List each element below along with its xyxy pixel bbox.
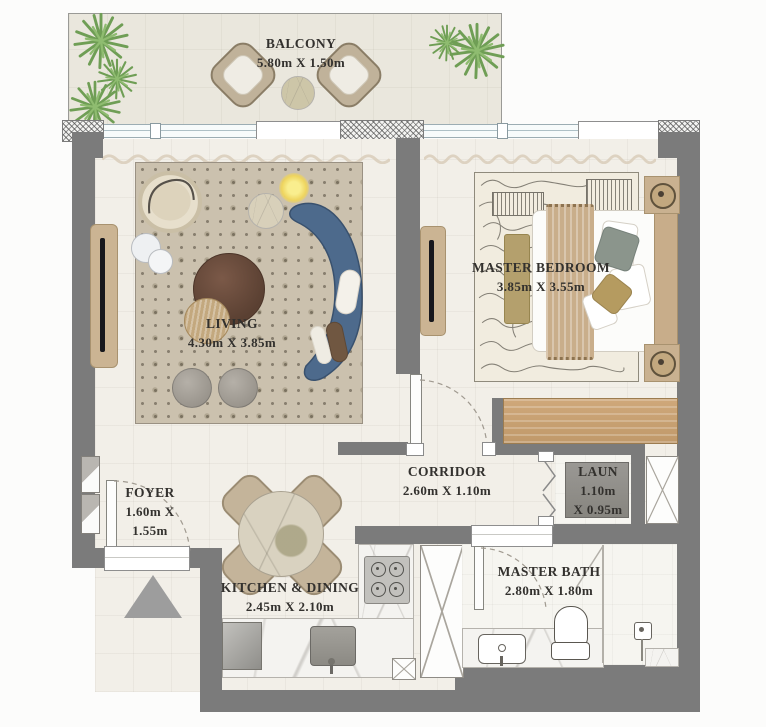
- plant-icon: [448, 22, 506, 80]
- window-mullion: [497, 123, 508, 139]
- wall: [631, 442, 645, 528]
- pouf: [172, 368, 212, 408]
- entrance-door-sill: [104, 546, 190, 571]
- side-table: [148, 249, 173, 274]
- room-dims: 2.45m X 2.10m: [221, 597, 359, 616]
- living-label: LIVING 4.30m X 3.85m: [188, 314, 276, 352]
- wall: [338, 442, 408, 455]
- wall: [549, 524, 678, 545]
- dining-table: [238, 491, 324, 577]
- balcony-door-panel: [256, 121, 344, 141]
- small-duct: [392, 658, 416, 680]
- shower-head-dot: [639, 627, 644, 632]
- stove: [364, 556, 410, 604]
- balcony-label: BALCONY 5.80m X 1.50m: [257, 34, 345, 72]
- door-jamb: [482, 442, 496, 456]
- bath-label: MASTER BATH 2.80m X 1.80m: [498, 562, 601, 600]
- room-name: KITCHEN & DINING: [221, 578, 359, 597]
- curtain-decor: [424, 150, 656, 164]
- stove-burner: [389, 562, 404, 577]
- room-name: CORRIDOR: [403, 462, 491, 481]
- window-mullion: [150, 123, 161, 139]
- door-jamb: [538, 451, 554, 462]
- pouf: [218, 368, 258, 408]
- bedroom-door-arc: [416, 378, 490, 450]
- foyer-label: FOYER 1.60m X 1.55m: [125, 483, 174, 540]
- room-dims: 1.60m X: [125, 502, 174, 521]
- bath-faucet-dot: [498, 644, 506, 652]
- wall: [200, 690, 460, 712]
- stove-burner: [389, 582, 404, 597]
- shower-drain-line: [641, 639, 643, 661]
- room-name: MASTER BEDROOM: [472, 258, 610, 277]
- room-dims: 2.80m X 1.80m: [498, 581, 601, 600]
- kitchen-appliance: [222, 622, 262, 670]
- window-panel: [578, 121, 662, 141]
- bedroom-label: MASTER BEDROOM 3.85m X 3.55m: [472, 258, 610, 296]
- wardrobe: [503, 398, 678, 444]
- nightstand: [644, 344, 680, 382]
- bath-door-sill: [471, 525, 553, 547]
- tv-icon: [429, 240, 434, 322]
- toilet-tank: [551, 642, 590, 660]
- room-name: BALCONY: [257, 34, 345, 53]
- stove-burner: [371, 562, 386, 577]
- curved-sofa: [272, 198, 372, 386]
- room-dims: 4.30m X 3.85m: [188, 333, 276, 352]
- room-dims: 3.85m X 3.55m: [472, 277, 610, 296]
- wall: [72, 548, 105, 568]
- wall: [355, 526, 473, 544]
- stove-burner: [371, 582, 386, 597]
- room-name: MASTER BATH: [498, 562, 601, 581]
- corridor-label: CORRIDOR 2.60m X 1.10m: [403, 462, 491, 500]
- wall: [455, 665, 700, 712]
- wall-niche: [81, 494, 100, 534]
- wall: [200, 560, 222, 712]
- bath-faucet: [500, 656, 503, 666]
- sink-faucet-dot: [328, 658, 335, 665]
- wall: [396, 138, 420, 374]
- room-name: LAUN: [573, 462, 622, 481]
- room-dims: 5.80m X 1.50m: [257, 53, 345, 72]
- door-jamb: [406, 443, 424, 456]
- pantry-shaft: [420, 545, 464, 678]
- entry-arrow: [124, 575, 182, 618]
- nightstand: [644, 176, 680, 214]
- laundry-label: LAUN 1.10m X 0.95m: [573, 462, 622, 519]
- wall-niche: [81, 456, 100, 493]
- kitchen-label: KITCHEN & DINING 2.45m X 2.10m: [221, 578, 359, 616]
- bed-headboard: [654, 206, 678, 356]
- room-dims: 2.60m X 1.10m: [403, 481, 491, 500]
- armchair: [138, 170, 202, 234]
- wall: [677, 132, 700, 712]
- floor-plan: BALCONY 5.80m X 1.50m: [0, 0, 766, 727]
- window-glass: [100, 124, 258, 138]
- room-name: LIVING: [188, 314, 276, 333]
- toilet: [550, 606, 590, 660]
- room-name: FOYER: [125, 483, 174, 502]
- lamp-dot: [658, 191, 664, 197]
- shower-ledge: [645, 648, 679, 667]
- lamp-dot: [658, 359, 664, 365]
- tv-icon: [100, 238, 105, 352]
- balcony-table: [281, 76, 315, 110]
- room-dims: X 0.95m: [573, 500, 622, 519]
- room-dims: 1.55m: [125, 521, 174, 540]
- room-dims: 1.10m: [573, 481, 622, 500]
- shaft: [646, 456, 679, 524]
